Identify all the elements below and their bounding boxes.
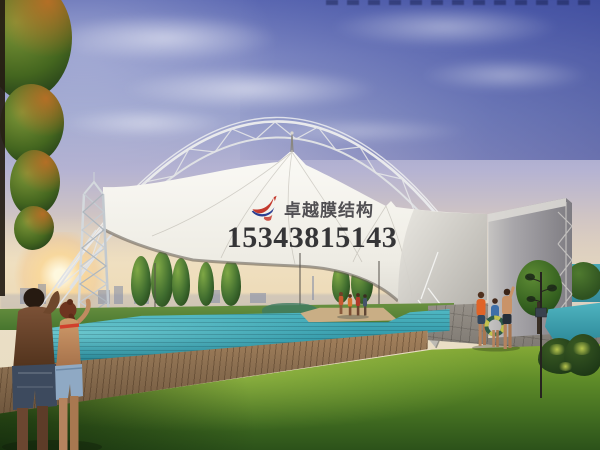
brand-name: 卓越膜结构	[284, 196, 374, 221]
man-figure	[12, 288, 60, 450]
foreground-couple	[2, 288, 102, 450]
left-tree-trunk	[0, 0, 5, 296]
woman-figure	[55, 299, 89, 450]
rendered-photo-scene: 卓越膜结构 15343815143	[0, 0, 600, 450]
swim-ring	[487, 318, 504, 335]
watermark-brand-row: 卓越膜结构	[220, 195, 404, 222]
pool-sign	[536, 308, 547, 317]
lamp-post-sapling	[525, 272, 557, 398]
watermark: 卓越膜结构 15343815143	[220, 195, 404, 253]
poolside-group	[472, 286, 520, 351]
mid-swimmer-figures	[337, 292, 369, 319]
swoosh-bird-icon	[250, 195, 279, 222]
phone-number: 15343815143	[220, 223, 404, 253]
